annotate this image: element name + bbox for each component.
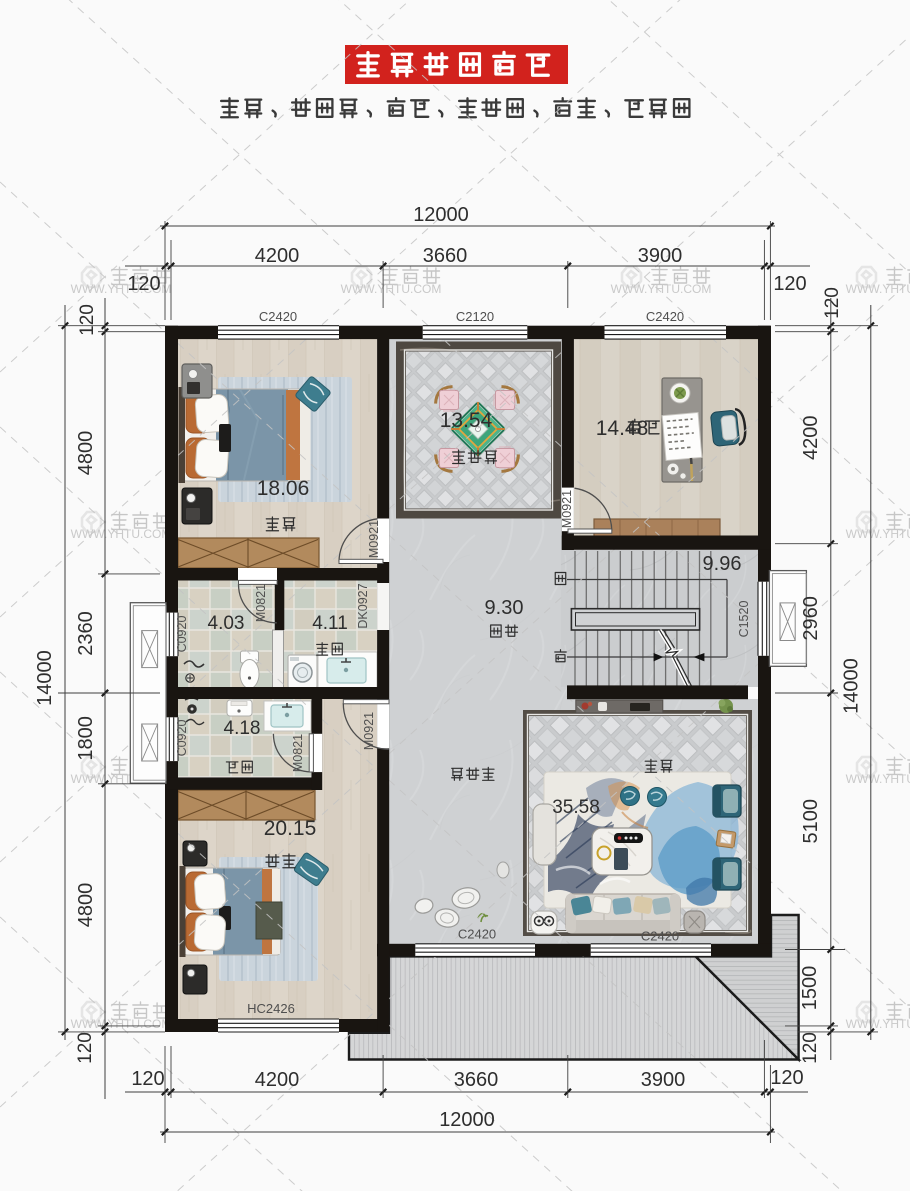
- svg-text:C2420: C2420: [646, 309, 684, 324]
- svg-text:13.54: 13.54: [440, 409, 493, 432]
- svg-text:4200: 4200: [800, 415, 822, 460]
- svg-text:3660: 3660: [454, 1069, 499, 1091]
- svg-text:12000: 12000: [413, 204, 469, 226]
- svg-text:M0921: M0921: [560, 490, 574, 528]
- svg-text:120: 120: [127, 273, 160, 295]
- svg-text:18.06: 18.06: [257, 477, 310, 500]
- svg-text:3900: 3900: [641, 1069, 686, 1091]
- svg-text:4200: 4200: [255, 245, 300, 267]
- svg-text:4.18: 4.18: [224, 718, 261, 739]
- svg-text:1800: 1800: [75, 716, 97, 761]
- svg-text:3900: 3900: [638, 245, 683, 267]
- svg-text:4.11: 4.11: [312, 613, 348, 634]
- svg-text:3660: 3660: [423, 245, 468, 267]
- svg-text:9.96: 9.96: [703, 553, 742, 575]
- svg-text:WWW.YHTU.COM: WWW.YHTU.COM: [846, 772, 910, 786]
- svg-text:M0921: M0921: [362, 712, 376, 750]
- svg-text:C0920: C0920: [175, 720, 189, 757]
- svg-text:C2120: C2120: [456, 309, 494, 324]
- svg-text:M0821: M0821: [254, 584, 268, 622]
- svg-text:WWW.YHTU.COM: WWW.YHTU.COM: [71, 1017, 172, 1031]
- svg-text:120: 120: [770, 1067, 803, 1089]
- svg-text:120: 120: [75, 1032, 96, 1064]
- svg-text:1500: 1500: [799, 966, 821, 1011]
- svg-text:4800: 4800: [75, 883, 97, 928]
- svg-text:4.03: 4.03: [208, 613, 245, 634]
- svg-text:9.30: 9.30: [485, 597, 524, 619]
- svg-text:120: 120: [131, 1068, 164, 1090]
- svg-text:C0920: C0920: [175, 616, 189, 653]
- svg-text:4200: 4200: [255, 1069, 300, 1091]
- svg-text:M0921: M0921: [367, 520, 381, 558]
- svg-text:14000: 14000: [841, 658, 863, 714]
- svg-text:HC2426: HC2426: [247, 1001, 295, 1016]
- svg-text:C2420: C2420: [458, 927, 496, 942]
- svg-text:M0821: M0821: [291, 734, 305, 772]
- svg-text:120: 120: [822, 287, 843, 319]
- svg-text:C1520: C1520: [737, 601, 751, 638]
- svg-text:120: 120: [77, 304, 98, 336]
- svg-text:120: 120: [800, 1032, 821, 1064]
- svg-text:WWW.YHTU.COM: WWW.YHTU.COM: [846, 1017, 910, 1031]
- svg-text:20.15: 20.15: [264, 817, 317, 840]
- svg-text:2360: 2360: [75, 611, 97, 656]
- svg-text:14000: 14000: [34, 650, 56, 706]
- svg-text:12000: 12000: [439, 1109, 495, 1131]
- svg-text:WWW.YHTU.COM: WWW.YHTU.COM: [846, 282, 910, 296]
- svg-text:WWW.YHTU.COM: WWW.YHTU.COM: [846, 527, 910, 541]
- svg-text:C2420: C2420: [641, 929, 679, 944]
- svg-text:5100: 5100: [800, 799, 822, 844]
- svg-text:35.58: 35.58: [552, 797, 600, 818]
- svg-text:120: 120: [773, 273, 806, 295]
- svg-text:DK0927: DK0927: [356, 583, 370, 628]
- svg-text:2960: 2960: [800, 596, 822, 641]
- svg-text:4800: 4800: [75, 431, 97, 476]
- svg-text:C2420: C2420: [259, 309, 297, 324]
- svg-text:WWW.YHTU.COM: WWW.YHTU.COM: [71, 527, 172, 541]
